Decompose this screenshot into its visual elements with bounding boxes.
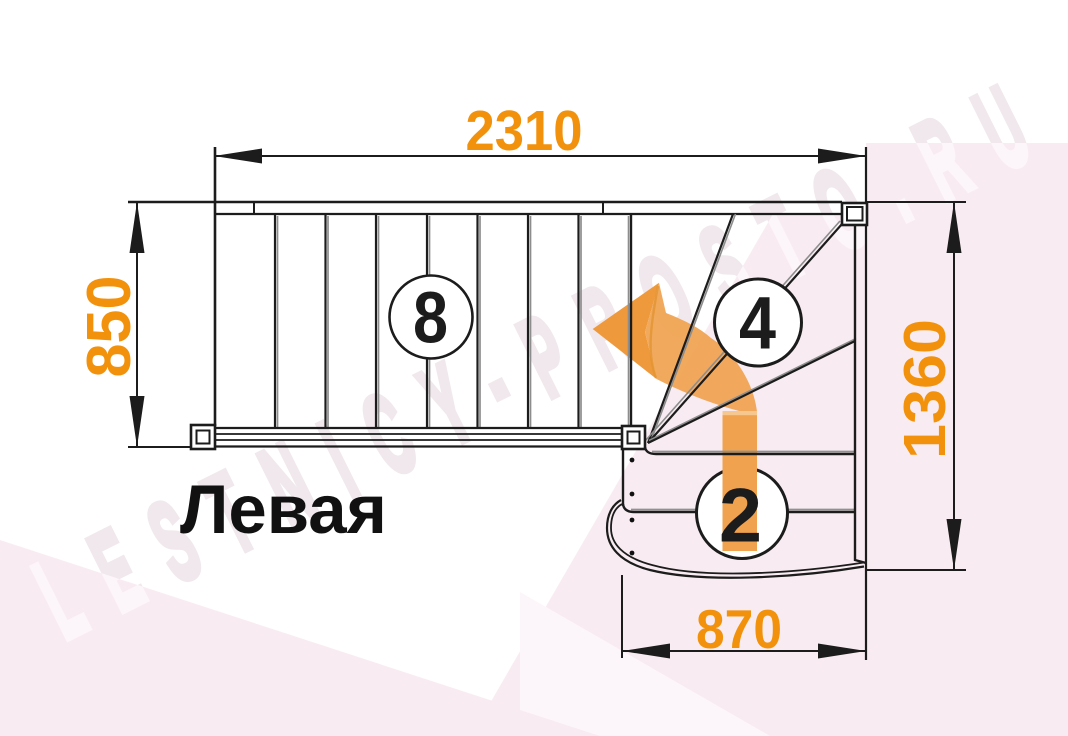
svg-text:850: 850 bbox=[75, 276, 144, 378]
svg-text:870: 870 bbox=[696, 598, 782, 660]
svg-text:8: 8 bbox=[413, 279, 448, 359]
svg-text:Левая: Левая bbox=[180, 471, 387, 548]
svg-text:2: 2 bbox=[719, 474, 762, 559]
svg-text:4: 4 bbox=[739, 282, 776, 365]
svg-text:1360: 1360 bbox=[892, 319, 958, 459]
svg-text:2310: 2310 bbox=[466, 99, 583, 163]
